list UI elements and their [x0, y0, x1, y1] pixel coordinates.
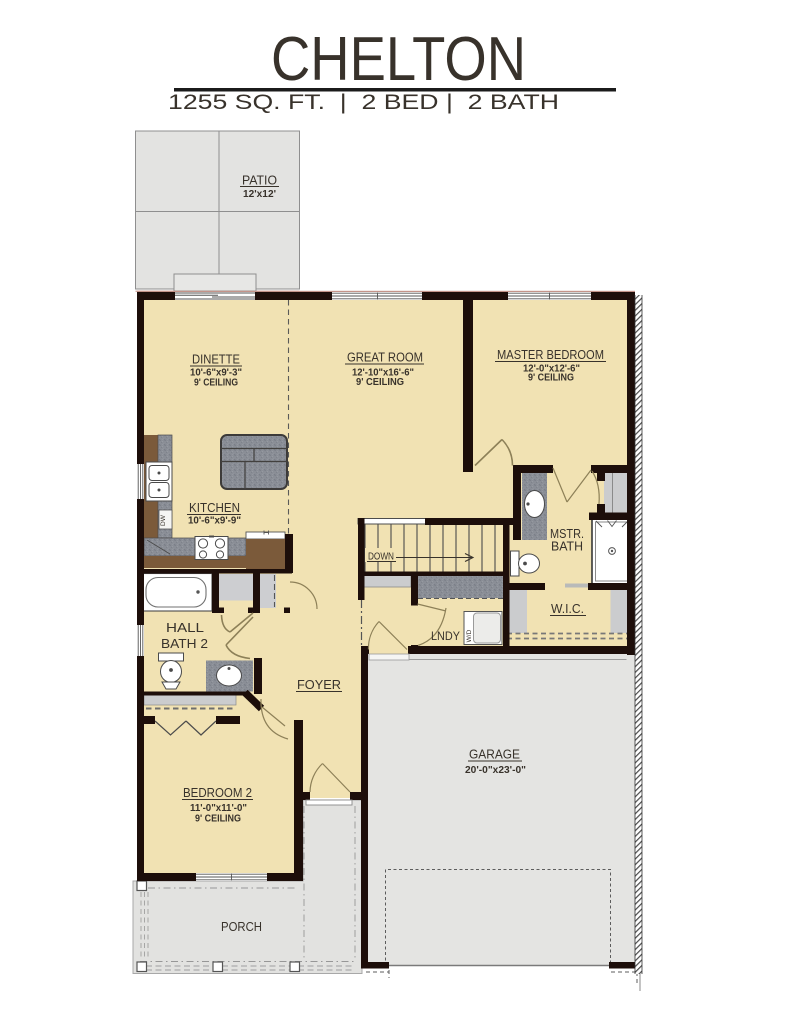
- svg-text:GREAT ROOM: GREAT ROOM: [347, 351, 423, 365]
- svg-text:LNDY: LNDY: [431, 631, 460, 643]
- svg-text:9' CEILING: 9' CEILING: [194, 377, 238, 389]
- svg-text:12'x12': 12'x12': [243, 188, 276, 200]
- svg-text:FOYER: FOYER: [297, 678, 341, 692]
- svg-text:20'-0"x23'-0": 20'-0"x23'-0": [465, 764, 526, 776]
- svg-text:BEDROOM 2: BEDROOM 2: [183, 786, 252, 800]
- svg-text:DINETTE: DINETTE: [192, 353, 240, 367]
- svg-text:DOWN: DOWN: [368, 552, 394, 563]
- svg-text:MASTER BEDROOM: MASTER BEDROOM: [497, 348, 604, 362]
- svg-text:9' CEILING: 9' CEILING: [528, 372, 574, 384]
- svg-text:CHELTON: CHELTON: [271, 25, 526, 94]
- svg-text:KITCHEN: KITCHEN: [189, 501, 240, 515]
- svg-text:W/D: W/D: [466, 629, 473, 642]
- svg-text:HALL: HALL: [166, 621, 204, 635]
- svg-text:PATIO: PATIO: [242, 174, 277, 188]
- svg-text:PORCH: PORCH: [221, 919, 262, 934]
- svg-text:GARAGE: GARAGE: [469, 748, 520, 762]
- svg-text:BATH 2: BATH 2: [161, 637, 208, 651]
- svg-text:9' CEILING: 9' CEILING: [195, 813, 241, 825]
- svg-text:DW: DW: [160, 514, 167, 526]
- svg-text:W.I.C.: W.I.C.: [551, 602, 584, 616]
- svg-text:1255 SQ. FT. | 2 BED | 2 BA: 1255 SQ. FT. | 2 BED | 2 BATH: [168, 91, 559, 114]
- svg-text:10'-6"x9'-9": 10'-6"x9'-9": [188, 515, 241, 527]
- svg-text:9' CEILING: 9' CEILING: [356, 376, 404, 388]
- svg-text:BATH: BATH: [551, 540, 583, 554]
